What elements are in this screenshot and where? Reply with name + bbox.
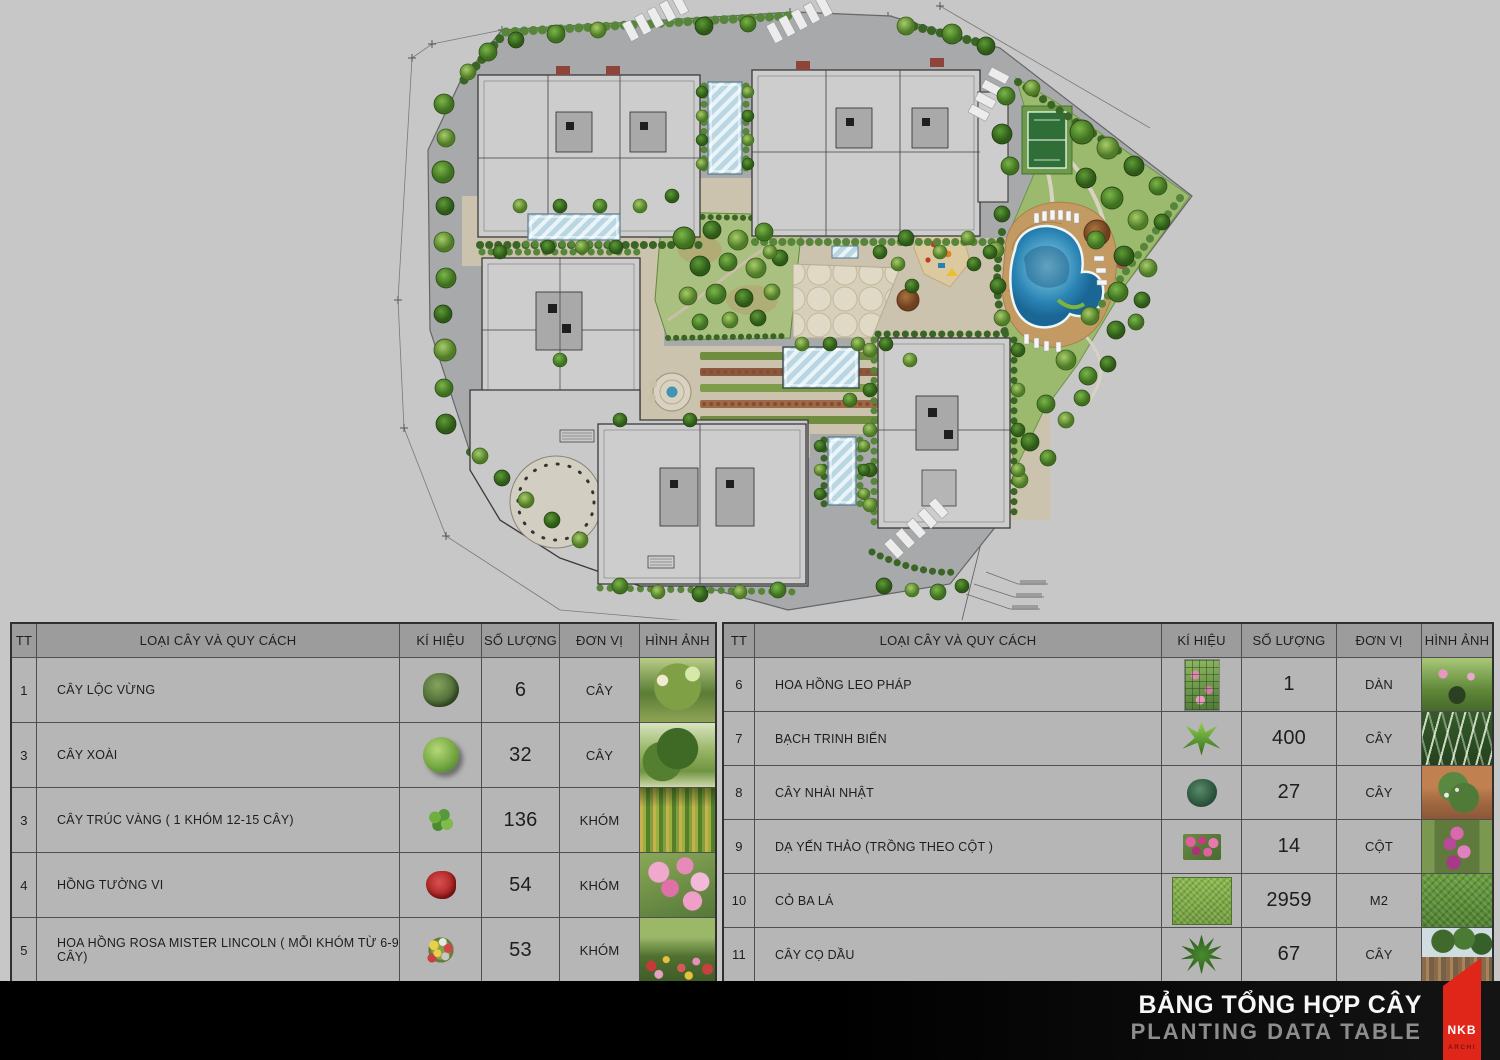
plant-photo-cell xyxy=(640,918,715,983)
plant-unit: CÂY xyxy=(1337,928,1422,982)
plant-unit: KHÓM xyxy=(560,788,640,853)
building-footprint-5 xyxy=(598,424,806,584)
sheet-titles: BẢNG TỔNG HỢP CÂY PLANTING DATA TABLE xyxy=(1131,991,1422,1045)
plant-row-number: 7 xyxy=(724,712,755,766)
canopy-3 xyxy=(783,347,859,388)
photo-spider-lily xyxy=(1422,712,1492,765)
plant-name: HỒNG TƯỜNG VI xyxy=(37,853,400,918)
plant-photo-cell xyxy=(1422,712,1492,766)
photo-clover xyxy=(1422,874,1492,927)
plant-name: DẠ YẾN THẢO (TRỒNG THEO CỘT ) xyxy=(755,820,1162,874)
plant-unit: CÂY xyxy=(560,723,640,788)
table-row: 3 CÂY XOÀI 32 CÂY xyxy=(12,723,715,788)
plant-unit: DÀN xyxy=(1337,658,1422,712)
site-plan xyxy=(0,0,1500,620)
plant-name: CÂY CỌ DẦU xyxy=(755,928,1162,982)
mango-tree-icon xyxy=(400,723,482,788)
plant-photo-cell xyxy=(640,723,715,788)
table-row: 7 BẠCH TRINH BIỂN 400 CÂY xyxy=(724,712,1492,766)
plant-photo-cell xyxy=(640,853,715,918)
canopy-1 xyxy=(708,82,742,174)
plant-row-number: 3 xyxy=(12,723,37,788)
sheet-title-vietnamese: BẢNG TỔNG HỢP CÂY xyxy=(1131,991,1422,1019)
photo-mango xyxy=(640,723,715,787)
plant-unit: KHÓM xyxy=(560,853,640,918)
photo-jasmine xyxy=(1422,766,1492,819)
plant-row-number: 4 xyxy=(12,853,37,918)
oil-palm-icon xyxy=(1162,928,1242,982)
plant-row-number: 9 xyxy=(724,820,755,874)
plant-row-number: 5 xyxy=(12,918,37,983)
header-unit: ĐƠN VỊ xyxy=(560,624,640,658)
plant-name: HOA HỒNG ROSA MISTER LINCOLN ( MỖI KHÓM … xyxy=(37,918,400,983)
red-flower-clump-icon xyxy=(400,853,482,918)
table-row: 4 HỒNG TƯỜNG VI 54 KHÓM xyxy=(12,853,715,918)
header-qty: SỐ LƯỢNG xyxy=(1242,624,1337,658)
plant-name: HOA HỒNG LEO PHÁP xyxy=(755,658,1162,712)
spider-lily-icon xyxy=(1162,712,1242,766)
logo-text: NKB xyxy=(1448,1023,1477,1037)
plant-unit: CÂY xyxy=(560,658,640,723)
header-name: LOẠI CÂY VÀ QUY CÁCH xyxy=(37,624,400,658)
nkb-archi-logo: NKB ARCHI xyxy=(1441,956,1481,1060)
table-row: 11 CÂY CỌ DẦU 67 CÂY xyxy=(724,928,1492,982)
building-footprint-2 xyxy=(752,58,1008,236)
photo-bamboo xyxy=(640,788,715,852)
table-row: 8 CÂY NHÀI NHẬT 27 CÂY xyxy=(724,766,1492,820)
plant-qty: 27 xyxy=(1242,766,1337,820)
table-row: 3 CÂY TRÚC VÀNG ( 1 KHÓM 12-15 CÂY) 136 … xyxy=(12,788,715,853)
photo-crape-myrtle xyxy=(640,853,715,917)
plaza-planter xyxy=(897,289,919,311)
table-header-row: TT LOẠI CÂY VÀ QUY CÁCH KÍ HIỆU SỐ LƯỢNG… xyxy=(12,624,715,658)
plant-photo-cell xyxy=(1422,658,1492,712)
header-unit: ĐƠN VỊ xyxy=(1337,624,1422,658)
title-bar: BẢNG TỔNG HỢP CÂY PLANTING DATA TABLE xyxy=(0,981,1500,1060)
plant-row-number: 3 xyxy=(12,788,37,853)
petunia-patch-icon xyxy=(1162,820,1242,874)
header-name: LOẠI CÂY VÀ QUY CÁCH xyxy=(755,624,1162,658)
plant-qty: 400 xyxy=(1242,712,1337,766)
planting-table-left: TT LOẠI CÂY VÀ QUY CÁCH KÍ HIỆU SỐ LƯỢNG… xyxy=(10,622,717,985)
plant-qty: 14 xyxy=(1242,820,1337,874)
rose-trellis-icon xyxy=(1162,658,1242,712)
plant-qty: 67 xyxy=(1242,928,1337,982)
jasmine-bush-icon xyxy=(1162,766,1242,820)
logo-subtext: ARCHI xyxy=(1448,1044,1476,1051)
building-footprint-4 xyxy=(878,338,1010,528)
photo-rose-field xyxy=(640,918,715,982)
plant-qty: 6 xyxy=(482,658,560,723)
broadleaf-tree-icon xyxy=(400,658,482,723)
header-photo: HÌNH ẢNH xyxy=(1422,624,1492,658)
plant-qty: 136 xyxy=(482,788,560,853)
plant-photo-cell xyxy=(1422,874,1492,928)
plant-row-number: 1 xyxy=(12,658,37,723)
table-row: 1 CÂY LỘC VỪNG 6 CÂY xyxy=(12,658,715,723)
plant-photo-cell xyxy=(1422,820,1492,874)
plant-qty: 2959 xyxy=(1242,874,1337,928)
photo-petunia-column xyxy=(1422,820,1492,873)
table-header-row: TT LOẠI CÂY VÀ QUY CÁCH KÍ HIỆU SỐ LƯỢNG… xyxy=(724,624,1492,658)
plant-name: CỎ BA LÁ xyxy=(755,874,1162,928)
header-tt: TT xyxy=(724,624,755,658)
table-row: 6 HOA HỒNG LEO PHÁP 1 DÀN xyxy=(724,658,1492,712)
planting-table-right: TT LOẠI CÂY VÀ QUY CÁCH KÍ HIỆU SỐ LƯỢNG… xyxy=(722,622,1494,984)
table-row: 9 DẠ YẾN THẢO (TRỒNG THEO CỘT ) 14 CỘT xyxy=(724,820,1492,874)
building-footprint-1 xyxy=(478,66,700,237)
photo-rose-arch xyxy=(1422,658,1492,711)
plant-row-number: 10 xyxy=(724,874,755,928)
header-photo: HÌNH ẢNH xyxy=(640,624,715,658)
canopy-4 xyxy=(828,437,856,505)
plant-qty: 53 xyxy=(482,918,560,983)
bamboo-clump-icon xyxy=(400,788,482,853)
plant-photo-cell xyxy=(640,658,715,723)
plant-name: CÂY XOÀI xyxy=(37,723,400,788)
plant-unit: KHÓM xyxy=(560,918,640,983)
canopy-2 xyxy=(528,214,620,240)
table-row: 10 CỎ BA LÁ 2959 M2 xyxy=(724,874,1492,928)
photo-loc-vung xyxy=(640,658,715,722)
plant-name: CÂY LỘC VỪNG xyxy=(37,658,400,723)
plant-name: CÂY NHÀI NHẬT xyxy=(755,766,1162,820)
plant-photo-cell xyxy=(1422,766,1492,820)
plant-row-number: 6 xyxy=(724,658,755,712)
plant-qty: 32 xyxy=(482,723,560,788)
plant-name: BẠCH TRINH BIỂN xyxy=(755,712,1162,766)
header-qty: SỐ LƯỢNG xyxy=(482,624,560,658)
plant-qty: 1 xyxy=(1242,658,1337,712)
plant-name: CÂY TRÚC VÀNG ( 1 KHÓM 12-15 CÂY) xyxy=(37,788,400,853)
plant-unit: CÂY xyxy=(1337,766,1422,820)
plant-unit: M2 xyxy=(1337,874,1422,928)
header-symbol: KÍ HIỆU xyxy=(400,624,482,658)
sheet-title-english: PLANTING DATA TABLE xyxy=(1131,1019,1422,1045)
header-tt: TT xyxy=(12,624,37,658)
drawing-sheet: TT LOẠI CÂY VÀ QUY CÁCH KÍ HIỆU SỐ LƯỢNG… xyxy=(0,0,1500,1060)
plant-row-number: 11 xyxy=(724,928,755,982)
plant-unit: CÂY xyxy=(1337,712,1422,766)
plant-unit: CỘT xyxy=(1337,820,1422,874)
plant-photo-cell xyxy=(640,788,715,853)
header-symbol: KÍ HIỆU xyxy=(1162,624,1242,658)
canopy-5 xyxy=(832,246,858,258)
table-row: 5 HOA HỒNG ROSA MISTER LINCOLN ( MỖI KHÓ… xyxy=(12,918,715,983)
plant-qty: 54 xyxy=(482,853,560,918)
mixed-rose-clump-icon xyxy=(400,918,482,983)
leader-notes xyxy=(966,572,1048,610)
grass-swatch-icon xyxy=(1162,874,1242,928)
plant-row-number: 8 xyxy=(724,766,755,820)
